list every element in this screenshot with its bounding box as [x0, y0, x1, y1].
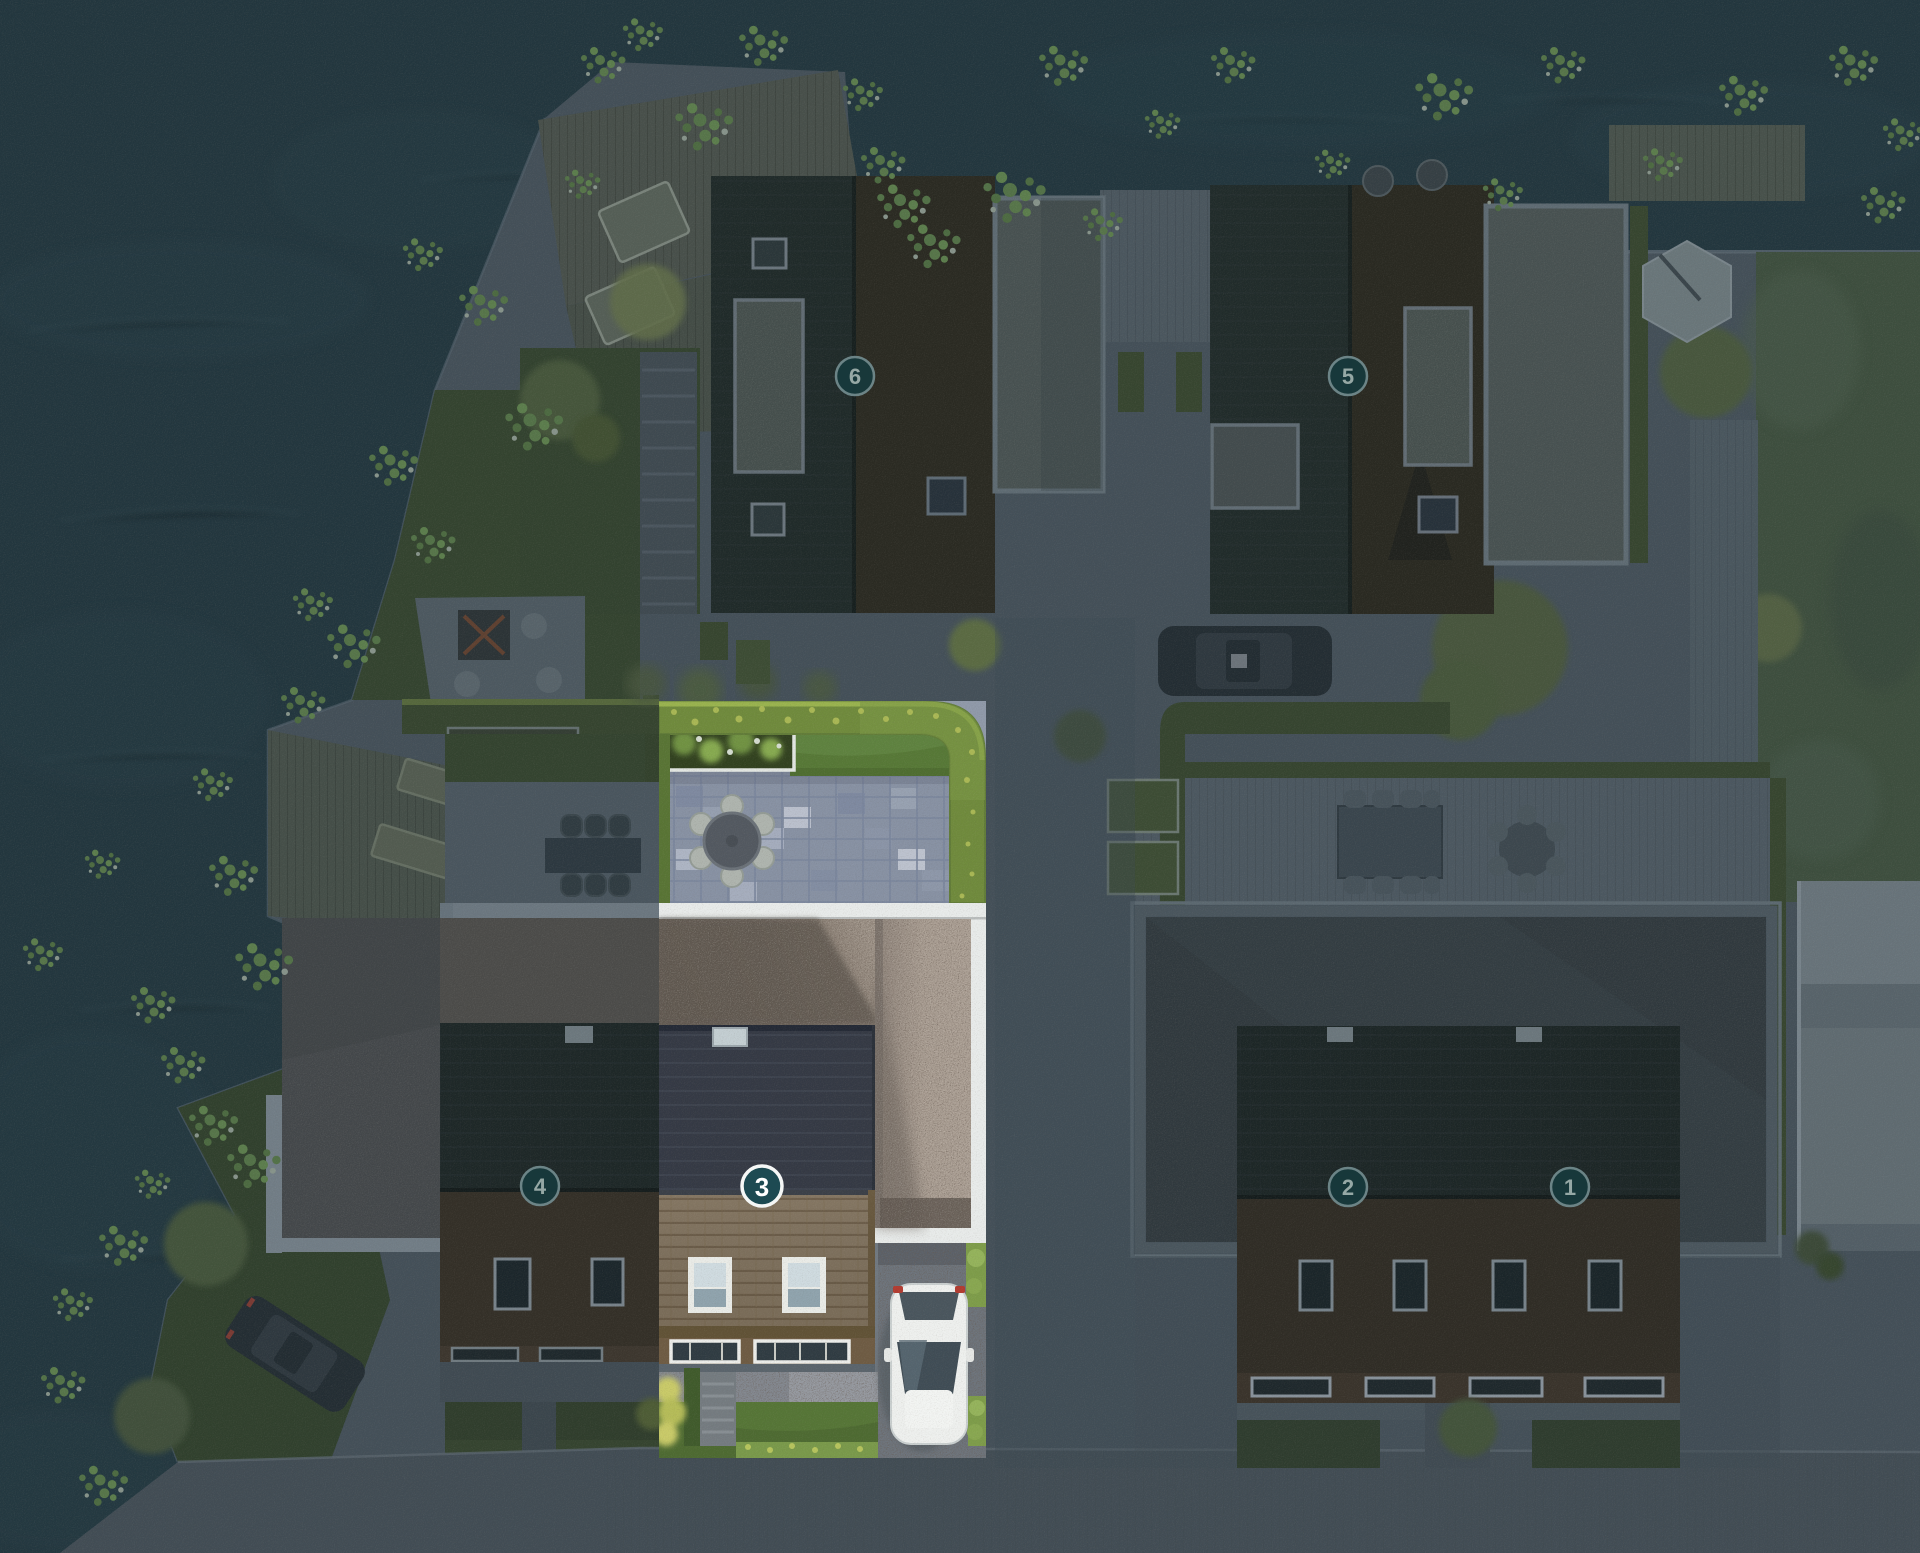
svg-text:1: 1 [1564, 1175, 1576, 1200]
svg-text:4: 4 [534, 1174, 547, 1199]
svg-text:6: 6 [849, 364, 861, 389]
svg-text:5: 5 [1342, 364, 1354, 389]
svg-text:3: 3 [755, 1172, 769, 1202]
svg-text:2: 2 [1342, 1175, 1354, 1200]
